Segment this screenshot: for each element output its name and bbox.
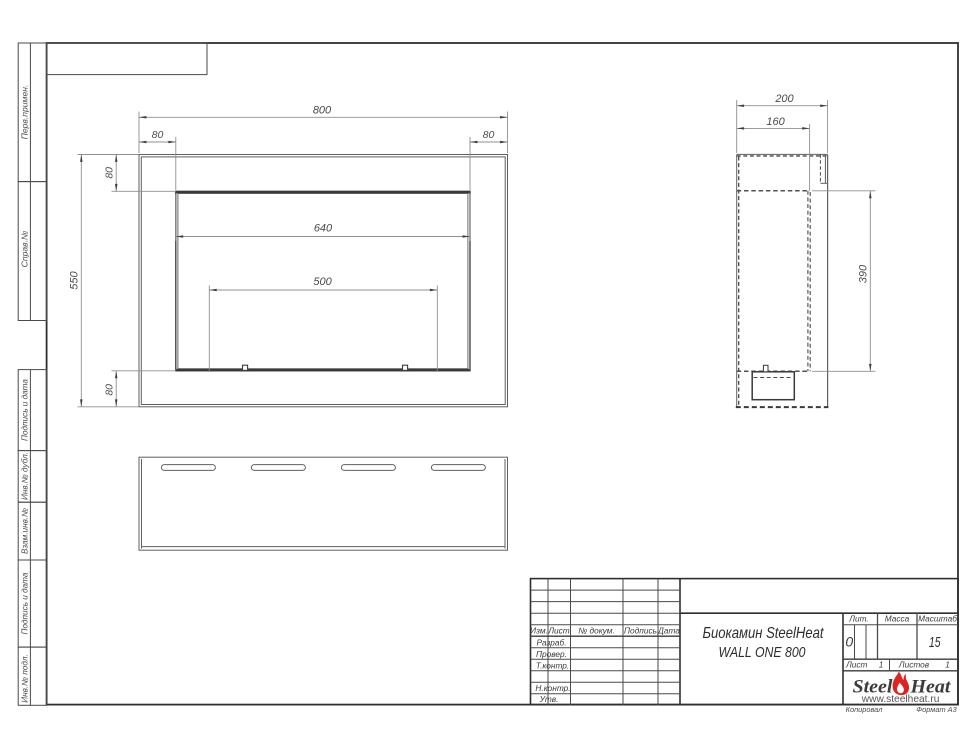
svg-text:1: 1: [945, 660, 950, 670]
svg-text:80: 80: [103, 384, 115, 396]
svg-text:Утв.: Утв.: [539, 694, 559, 704]
svg-text:80: 80: [483, 129, 495, 141]
svg-text:80: 80: [152, 129, 164, 141]
svg-text:15: 15: [929, 634, 941, 651]
svg-text:160: 160: [766, 116, 785, 128]
svg-text:500: 500: [313, 276, 332, 288]
svg-text:Формат А3: Формат А3: [916, 705, 957, 714]
svg-text:Листов: Листов: [898, 660, 930, 670]
svg-text:Лист: Лист: [547, 625, 569, 635]
svg-text:www.steelheat.ru: www.steelheat.ru: [861, 694, 940, 705]
svg-text:Справ.№: Справ.№: [20, 231, 30, 268]
svg-text:Разраб.: Разраб.: [536, 637, 566, 647]
svg-text:Т.контр.: Т.контр.: [536, 660, 569, 670]
svg-text:Подпись: Подпись: [624, 625, 657, 635]
svg-text:Дата: Дата: [657, 625, 680, 635]
svg-text:Масса: Масса: [885, 614, 910, 624]
svg-text:200: 200: [774, 93, 794, 105]
svg-text:Биокамин SteelHeat: Биокамин SteelHeat: [703, 625, 824, 642]
svg-text:Копировал: Копировал: [846, 705, 884, 714]
svg-text:Изм.: Изм.: [530, 625, 548, 635]
svg-text:80: 80: [103, 167, 115, 179]
svg-text:Взам.инв.№: Взам.инв.№: [21, 508, 30, 554]
svg-text:Масштаб: Масштаб: [918, 614, 957, 624]
svg-text:Инв.№ подл.: Инв.№ подл.: [21, 654, 30, 703]
svg-text:Перв.примен.: Перв.примен.: [20, 85, 30, 140]
svg-text:390: 390: [857, 264, 869, 283]
svg-text:550: 550: [69, 270, 81, 289]
svg-text:Подпись и дата: Подпись и дата: [21, 379, 30, 441]
svg-text:Подпись и дата: Подпись и дата: [21, 572, 30, 634]
svg-text:800: 800: [313, 105, 332, 117]
svg-text:Н.контр.: Н.контр.: [535, 683, 570, 693]
svg-text:0: 0: [845, 634, 853, 650]
svg-text:Лит.: Лит.: [848, 614, 868, 624]
svg-text:№ докум.: № докум.: [578, 625, 615, 635]
svg-text:WALL ONE 800: WALL ONE 800: [719, 645, 806, 661]
svg-text:Лист: Лист: [845, 660, 867, 670]
svg-text:Провер.: Провер.: [536, 649, 567, 659]
svg-text:Инв.№ дубл.: Инв.№ дубл.: [21, 452, 30, 500]
svg-text:1: 1: [879, 660, 884, 670]
svg-text:640: 640: [314, 223, 333, 235]
